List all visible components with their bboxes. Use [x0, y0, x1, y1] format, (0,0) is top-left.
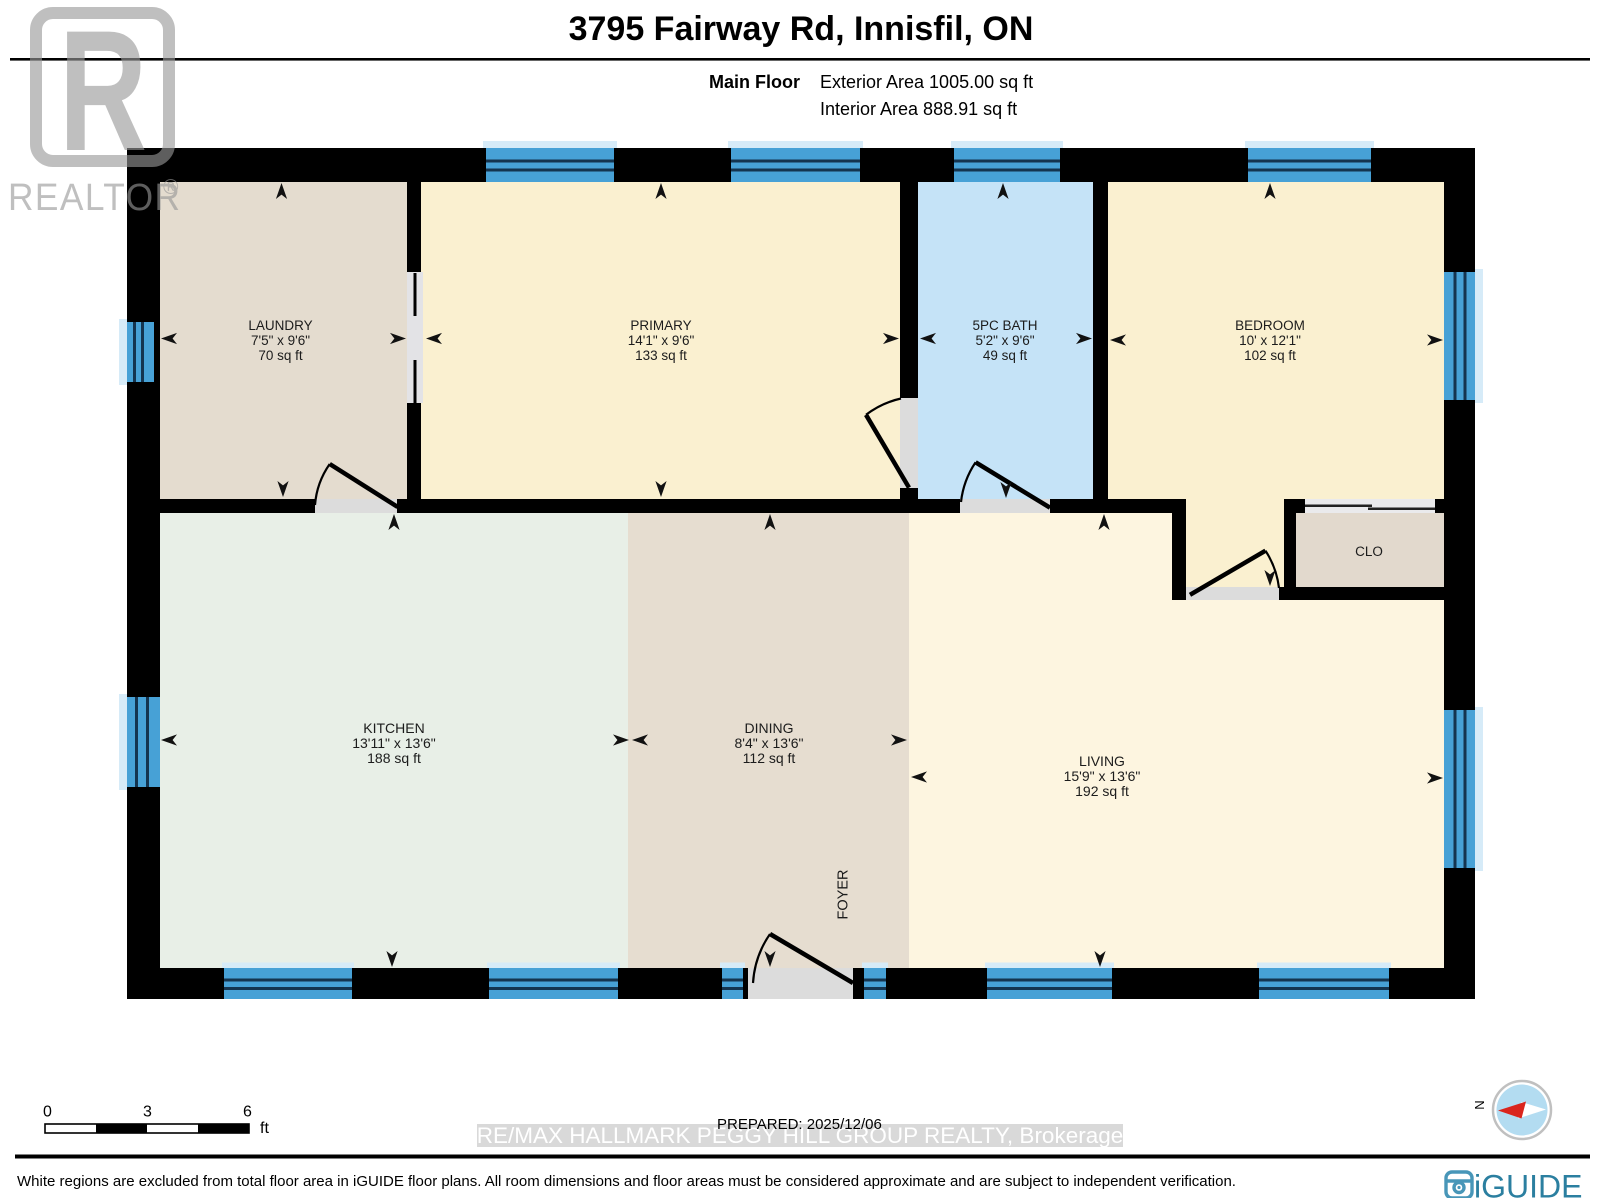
svg-text:3: 3 [143, 1104, 152, 1121]
svg-text:CLO: CLO [1355, 544, 1383, 559]
svg-text:8'4" x 13'6": 8'4" x 13'6" [735, 735, 804, 751]
svg-text:6: 6 [243, 1104, 252, 1121]
svg-text:Exterior Area 1005.00 sq ft: Exterior Area 1005.00 sq ft [820, 72, 1033, 92]
svg-text:70 sq ft: 70 sq ft [258, 348, 303, 363]
svg-text:5PC BATH: 5PC BATH [972, 318, 1037, 333]
svg-text:49 sq ft: 49 sq ft [983, 348, 1028, 363]
svg-text:Interior Area 888.91 sq ft: Interior Area 888.91 sq ft [820, 99, 1017, 119]
svg-text:LAUNDRY: LAUNDRY [248, 318, 312, 333]
svg-text:KITCHEN: KITCHEN [363, 720, 424, 736]
svg-text:7'5" x 9'6": 7'5" x 9'6" [251, 333, 310, 348]
svg-text:102 sq ft: 102 sq ft [1244, 348, 1296, 363]
svg-text:133 sq ft: 133 sq ft [635, 348, 687, 363]
svg-text:LIVING: LIVING [1079, 753, 1125, 769]
svg-text:ft: ft [260, 1120, 269, 1137]
svg-text:0: 0 [43, 1104, 52, 1121]
svg-text:188 sq ft: 188 sq ft [367, 750, 421, 766]
svg-text:FOYER: FOYER [836, 870, 852, 920]
svg-text:Main Floor: Main Floor [709, 72, 800, 92]
svg-text:112 sq ft: 112 sq ft [743, 750, 796, 766]
svg-text:192 sq ft: 192 sq ft [1075, 783, 1129, 799]
svg-text:®: ® [163, 176, 179, 199]
svg-text:White regions are excluded fro: White regions are excluded from total fl… [17, 1173, 1236, 1190]
svg-text:iGUIDE: iGUIDE [1474, 1169, 1582, 1198]
svg-text:3795 Fairway Rd, Innisfil, ON: 3795 Fairway Rd, Innisfil, ON [569, 10, 1034, 48]
svg-text:PREPARED: 2025/12/06: PREPARED: 2025/12/06 [717, 1116, 882, 1133]
svg-text:5'2" x 9'6": 5'2" x 9'6" [975, 333, 1034, 348]
svg-text:REALTOR: REALTOR [8, 176, 181, 218]
svg-text:13'11" x 13'6": 13'11" x 13'6" [352, 735, 436, 751]
svg-text:BEDROOM: BEDROOM [1235, 318, 1305, 333]
svg-text:15'9" x 13'6": 15'9" x 13'6" [1064, 768, 1141, 784]
svg-text:N: N [1472, 1100, 1487, 1109]
svg-text:PRIMARY: PRIMARY [630, 318, 691, 333]
svg-text:14'1" x 9'6": 14'1" x 9'6" [628, 333, 695, 348]
svg-text:DINING: DINING [745, 720, 794, 736]
svg-text:R: R [59, 0, 147, 187]
svg-text:10' x 12'1": 10' x 12'1" [1239, 333, 1301, 348]
